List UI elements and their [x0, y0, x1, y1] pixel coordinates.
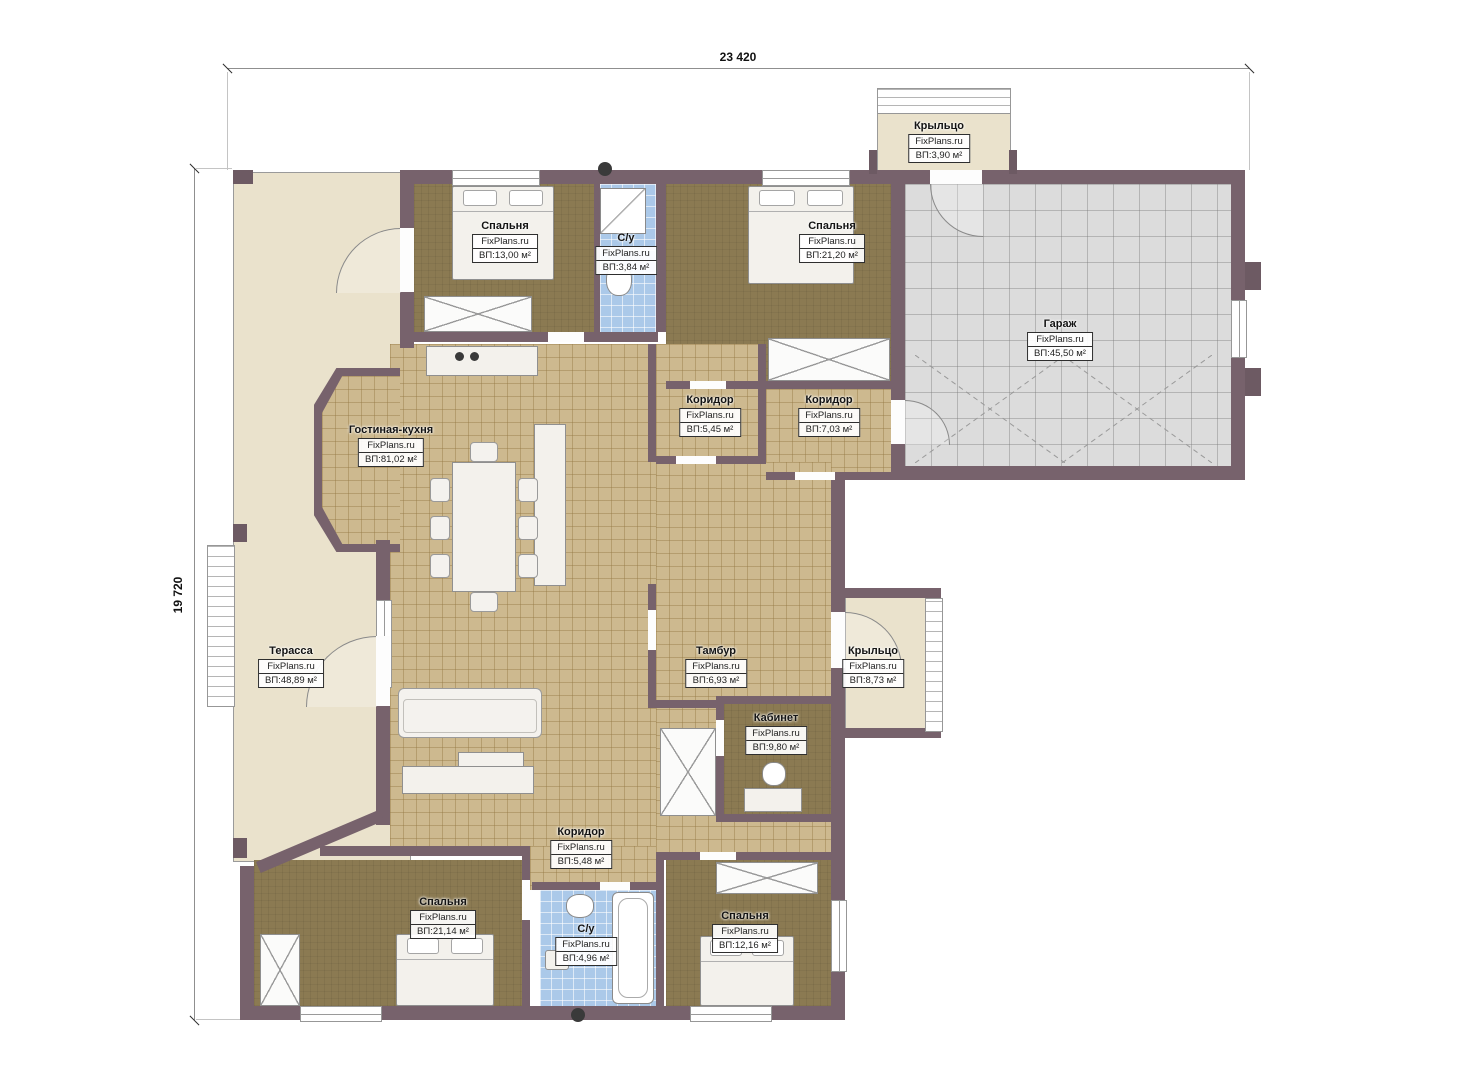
room-label-porch-top: Крыльцо FixPlans.ru ВП:3,90 м²: [908, 120, 970, 163]
room-label-corridor-3: Коридор FixPlans.ru ВП:5,48 м²: [550, 826, 612, 869]
office-chair: [762, 762, 786, 786]
window: [1231, 300, 1247, 358]
chair: [430, 516, 450, 540]
room-area: ВП:9,80 м²: [746, 741, 806, 754]
brand-watermark: FixPlans.ru: [843, 660, 903, 674]
wall-bottom-left: [240, 866, 254, 1020]
brand-watermark: FixPlans.ru: [259, 660, 323, 674]
wall-interior: [532, 882, 656, 890]
bed-blanket-line: [397, 959, 493, 960]
wall-interior: [648, 700, 724, 708]
brand-watermark: FixPlans.ru: [799, 409, 859, 423]
room-info-box: FixPlans.ru ВП:45,50 м²: [1027, 332, 1093, 361]
window: [452, 170, 540, 186]
brand-watermark: FixPlans.ru: [746, 727, 806, 741]
room-name: Коридор: [679, 394, 741, 406]
room-label-wc-bottom: С/у FixPlans.ru ВП:4,96 м²: [555, 923, 617, 966]
dimension-label-width: 23 420: [720, 50, 757, 64]
room-label-porch-right: Крыльцо FixPlans.ru ВП:8,73 м²: [842, 645, 904, 688]
wall-interior: [758, 344, 766, 462]
room-area: ВП:5,48 м²: [551, 855, 611, 868]
room-label-corridor-2: Коридор FixPlans.ru ВП:7,03 м²: [798, 394, 860, 437]
dining-table: [452, 462, 516, 592]
door-gap: [700, 852, 736, 860]
room-area: ВП:3,90 м²: [909, 149, 969, 162]
door-gap: [676, 456, 716, 464]
room-area: ВП:48,89 м²: [259, 674, 323, 687]
room-area: ВП:13,00 м²: [473, 249, 537, 262]
brand-watermark: FixPlans.ru: [556, 938, 616, 952]
porch-right-steps: [925, 598, 943, 732]
room-label-terrace: Терасса FixPlans.ru ВП:48,89 м²: [258, 645, 324, 688]
garage-pilaster: [1245, 262, 1261, 290]
room-area: ВП:8,73 м²: [843, 674, 903, 687]
dimension-line-top: [227, 68, 1249, 69]
window: [300, 1006, 382, 1022]
room-area: ВП:6,93 м²: [686, 674, 746, 687]
wall-interior: [656, 852, 664, 1006]
terrace-post: [233, 524, 247, 542]
room-name: Крыльцо: [842, 645, 904, 657]
wardrobe: [424, 296, 532, 332]
door-gap: [522, 880, 530, 920]
toilet: [566, 894, 594, 918]
sofa: [398, 688, 542, 738]
wall-interior: [716, 696, 845, 704]
room-info-box: FixPlans.ru ВП:21,20 м²: [799, 234, 865, 263]
room-area: ВП:4,96 м²: [556, 952, 616, 965]
brand-watermark: FixPlans.ru: [680, 409, 740, 423]
room-info-box: FixPlans.ru ВП:6,93 м²: [685, 659, 747, 688]
room-label-bedroom-bottom-right: Спальня FixPlans.ru ВП:12,16 м²: [712, 910, 778, 953]
dimension-line-left: [194, 168, 195, 1020]
wall-interior: [656, 184, 666, 332]
room-info-box: FixPlans.ru ВП:5,48 м²: [550, 840, 612, 869]
room-name: Коридор: [550, 826, 612, 838]
room-area: ВП:21,20 м²: [800, 249, 864, 262]
room-info-box: FixPlans.ru ВП:12,16 м²: [712, 924, 778, 953]
chair: [518, 554, 538, 578]
room-area: ВП:5,45 м²: [680, 423, 740, 436]
stove-burner: [455, 352, 464, 361]
wall-interior: [320, 846, 530, 856]
brand-watermark: FixPlans.ru: [473, 235, 537, 249]
porch-top-post: [1009, 150, 1017, 174]
wall-interior: [656, 852, 831, 860]
terrace-side-steps: [207, 545, 235, 707]
door-gap: [600, 882, 630, 890]
floor-plan: 23 420 19 720: [0, 0, 1474, 1080]
room-info-box: FixPlans.ru ВП:3,90 м²: [908, 134, 970, 163]
garage-parking-mark: [1062, 355, 1212, 463]
chair: [470, 442, 498, 462]
door-gap: [648, 610, 656, 650]
room-info-box: FixPlans.ru ВП:48,89 м²: [258, 659, 324, 688]
chair: [470, 592, 498, 612]
shower: [600, 188, 646, 234]
chimney-mark: [598, 162, 612, 176]
room-label-bedroom-top-left: Спальня FixPlans.ru ВП:13,00 м²: [472, 220, 538, 263]
room-info-box: FixPlans.ru ВП:4,96 м²: [555, 937, 617, 966]
room-info-box: FixPlans.ru ВП:3,84 м²: [595, 246, 657, 275]
door-gap-terrace-bedroom: [400, 228, 414, 292]
wardrobe: [260, 934, 300, 1006]
room-area: ВП:12,16 м²: [713, 939, 777, 952]
office-desk: [744, 788, 802, 812]
room-info-box: FixPlans.ru ВП:13,00 м²: [472, 234, 538, 263]
wall-interior: [406, 332, 658, 342]
room-name: Спальня: [712, 910, 778, 922]
brand-watermark: FixPlans.ru: [596, 247, 656, 261]
room-label-wc-top: С/у FixPlans.ru ВП:3,84 м²: [595, 232, 657, 275]
porch-top-steps: [877, 88, 1011, 114]
bed: [396, 934, 494, 1006]
door-gap: [690, 381, 726, 389]
wall-interior: [522, 846, 530, 1006]
door-gap: [716, 720, 724, 756]
room-name: Спальня: [410, 896, 476, 908]
chair: [518, 516, 538, 540]
bed-blanket-line: [453, 211, 553, 212]
brand-watermark: FixPlans.ru: [713, 925, 777, 939]
bed-blanket-line: [701, 961, 793, 962]
room-area: ВП:45,50 м²: [1028, 347, 1092, 360]
stove-burner: [470, 352, 479, 361]
dimension-label-height: 19 720: [171, 577, 185, 614]
kitchen-counter: [426, 346, 538, 376]
room-info-box: FixPlans.ru ВП:8,73 м²: [842, 659, 904, 688]
room-area: ВП:7,03 м²: [799, 423, 859, 436]
room-area: ВП:81,02 м²: [359, 453, 423, 466]
room-label-bedroom-bottom-left: Спальня FixPlans.ru ВП:21,14 м²: [410, 896, 476, 939]
room-name: Тамбур: [685, 645, 747, 657]
kitchen-counter-vertical: [534, 424, 566, 586]
chair: [430, 478, 450, 502]
window: [690, 1006, 772, 1022]
brand-watermark: FixPlans.ru: [1028, 333, 1092, 347]
room-info-box: FixPlans.ru ВП:21,14 м²: [410, 910, 476, 939]
room-name: Терасса: [258, 645, 324, 657]
garage-pilaster: [1245, 368, 1261, 396]
chair: [518, 478, 538, 502]
wall-garage-bottom: [891, 466, 1245, 480]
window: [831, 900, 847, 972]
extension-line: [196, 168, 232, 169]
room-name: С/у: [555, 923, 617, 935]
room-label-living-kitchen: Гостиная-кухня FixPlans.ru ВП:81,02 м²: [349, 424, 433, 467]
extension-line: [227, 72, 228, 170]
room-name: Спальня: [472, 220, 538, 232]
brand-watermark: FixPlans.ru: [551, 841, 611, 855]
brand-watermark: FixPlans.ru: [686, 660, 746, 674]
wall-interior: [648, 344, 656, 462]
door-gap-garage: [891, 400, 905, 444]
window: [762, 170, 850, 186]
room-name: Гостиная-кухня: [349, 424, 433, 436]
door-gap-terrace-living: [376, 636, 390, 706]
door-gap: [548, 332, 584, 342]
room-area: ВП:21,14 м²: [411, 925, 475, 938]
extension-line: [1249, 72, 1250, 170]
door-gap-porch-top: [930, 170, 982, 184]
room-label-corridor-1: Коридор FixPlans.ru ВП:5,45 м²: [679, 394, 741, 437]
room-info-box: FixPlans.ru ВП:7,03 м²: [798, 408, 860, 437]
bathtub: [612, 892, 654, 1004]
room-info-box: FixPlans.ru ВП:5,45 м²: [679, 408, 741, 437]
wall-interior: [716, 814, 845, 822]
room-name: Крыльцо: [908, 120, 970, 132]
garage-parking-mark: [915, 355, 1065, 463]
room-label-tambour: Тамбур FixPlans.ru ВП:6,93 м²: [685, 645, 747, 688]
utility-mark: [571, 1008, 585, 1022]
porch-top-post: [869, 150, 877, 174]
room-name: Коридор: [798, 394, 860, 406]
porch-right-wall-top: [845, 588, 941, 598]
room-name: Спальня: [799, 220, 865, 232]
room-info-box: FixPlans.ru ВП:81,02 м²: [358, 438, 424, 467]
door-gap: [795, 472, 835, 480]
room-area: ВП:3,84 м²: [596, 261, 656, 274]
brand-watermark: FixPlans.ru: [800, 235, 864, 249]
room-label-bedroom-top-right: Спальня FixPlans.ru ВП:21,20 м²: [799, 220, 865, 263]
hall-closet: [660, 728, 716, 816]
room-label-office: Кабинет FixPlans.ru ВП:9,80 м²: [745, 712, 807, 755]
room-name: Кабинет: [745, 712, 807, 724]
room-name: Гараж: [1027, 318, 1093, 330]
terrace-post: [233, 838, 247, 858]
brand-watermark: FixPlans.ru: [359, 439, 423, 453]
room-info-box: FixPlans.ru ВП:9,80 м²: [745, 726, 807, 755]
sideboard: [402, 766, 534, 794]
bed-blanket-line: [749, 211, 853, 212]
wardrobe: [716, 862, 818, 894]
brand-watermark: FixPlans.ru: [411, 911, 475, 925]
brand-watermark: FixPlans.ru: [909, 135, 969, 149]
room-label-garage: Гараж FixPlans.ru ВП:45,50 м²: [1027, 318, 1093, 361]
extension-line: [196, 1019, 240, 1020]
chair: [430, 554, 450, 578]
wardrobe: [768, 338, 890, 381]
wall-interior: [716, 696, 724, 820]
room-name: С/у: [595, 232, 657, 244]
terrace-post: [233, 170, 253, 184]
